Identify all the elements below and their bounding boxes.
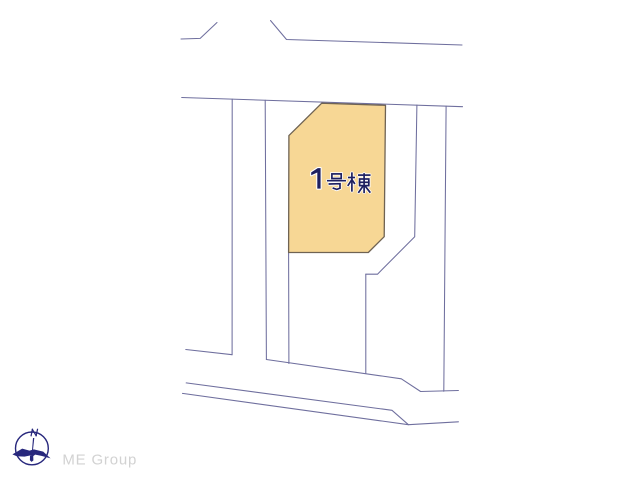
svg-text:ME Group: ME Group: [62, 452, 137, 469]
